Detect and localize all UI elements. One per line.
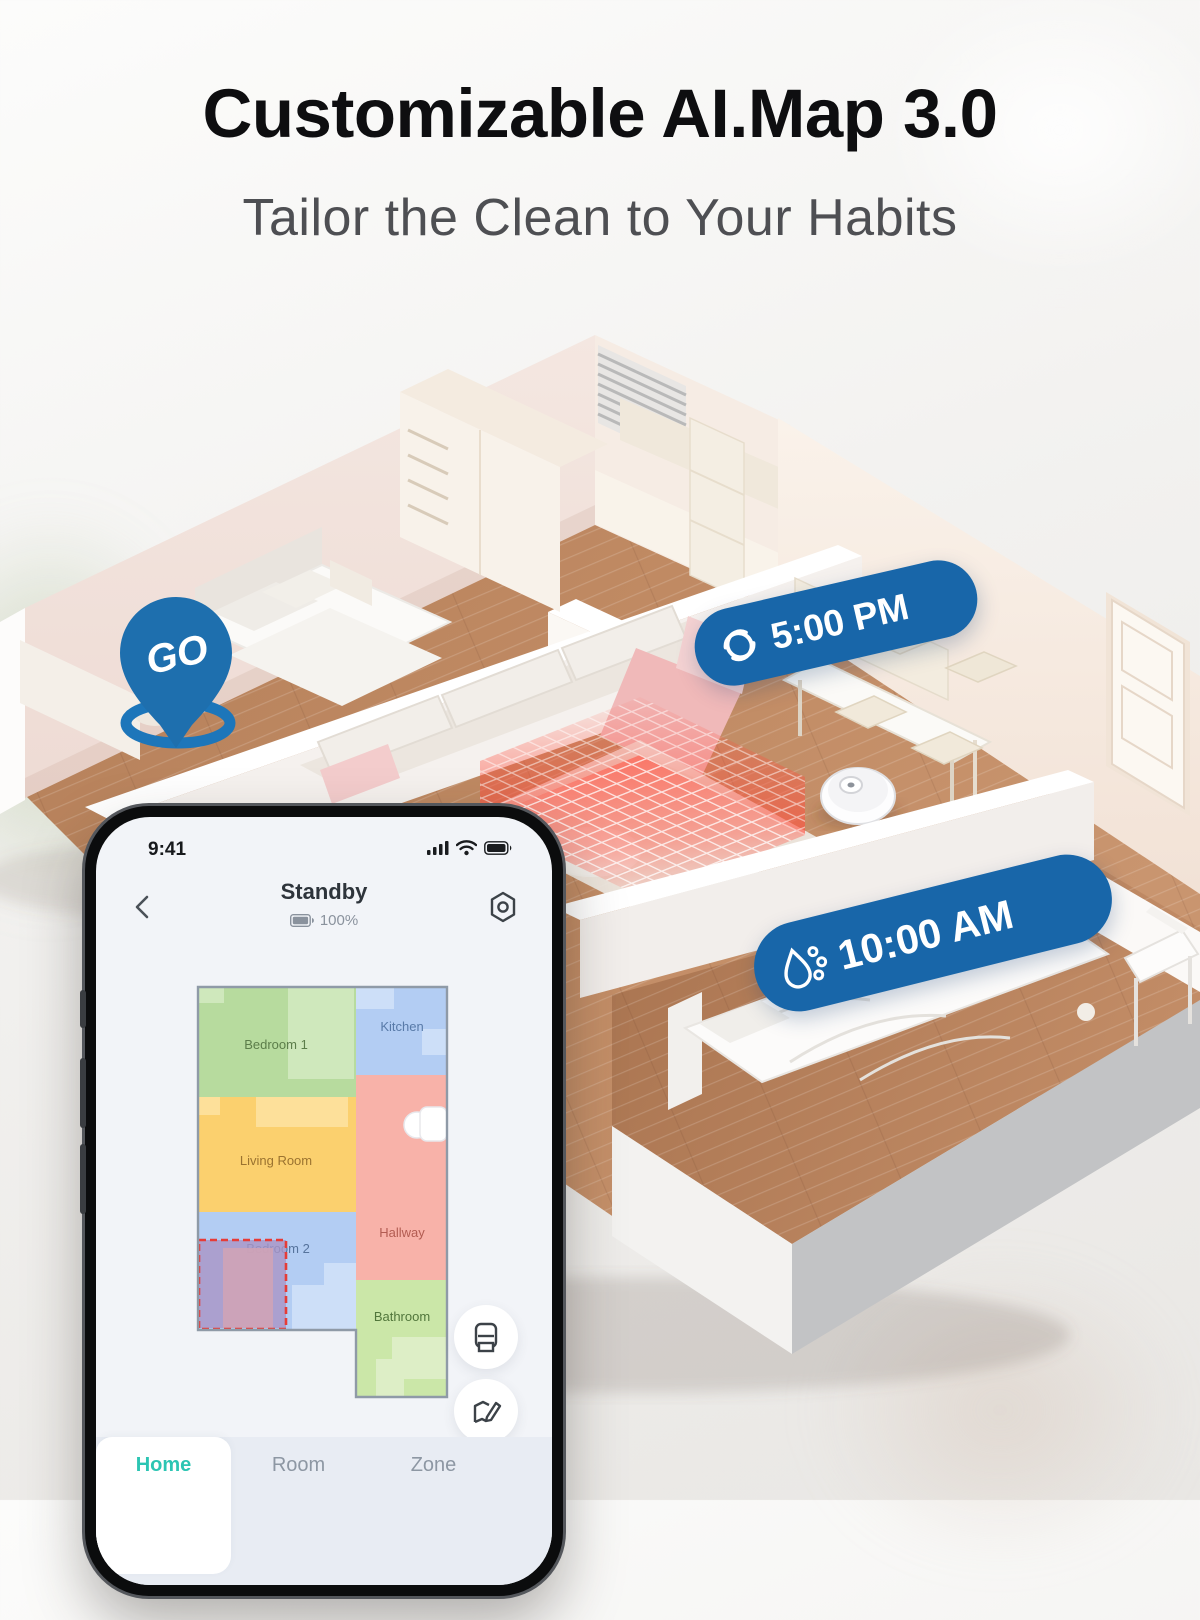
- gear-icon: [485, 889, 521, 925]
- map-room-label: Bedroom 1: [244, 1037, 308, 1052]
- edit-map-icon: [468, 1393, 504, 1429]
- battery-icon: [484, 841, 512, 855]
- settings-button[interactable]: [484, 889, 522, 927]
- vacuum-swirl-icon: [714, 620, 764, 670]
- map-room-label: Kitchen: [380, 1019, 423, 1034]
- dock-icon: [468, 1319, 504, 1355]
- vacuum-schedule-time: 5:00 PM: [767, 586, 913, 658]
- tab-zone[interactable]: Zone: [366, 1437, 501, 1585]
- dock-button[interactable]: [454, 1305, 518, 1369]
- map-room-kitchen[interactable]: Kitchen: [356, 987, 447, 1075]
- map-room-label: Bathroom: [374, 1309, 430, 1324]
- map-room-hallway[interactable]: Hallway: [356, 1075, 447, 1280]
- map-room-label: Hallway: [379, 1225, 425, 1240]
- map-room-bathroom[interactable]: Bathroom: [356, 1280, 447, 1397]
- phone-side-button: [80, 1144, 86, 1214]
- app-header: Standby 100%: [96, 879, 552, 959]
- phone-mockup: 9:41: [85, 806, 563, 1596]
- tab-room[interactable]: Room: [231, 1437, 366, 1585]
- cellular-signal-icon: [427, 840, 449, 856]
- wifi-icon: [456, 840, 477, 856]
- app-screen: 9:41: [96, 817, 552, 1585]
- status-time: 9:41: [148, 839, 186, 861]
- status-bar: 9:41: [96, 837, 552, 865]
- phone-side-button: [80, 990, 86, 1028]
- robot-battery-percent: 100%: [320, 912, 358, 929]
- tab-home[interactable]: Home: [96, 1437, 231, 1574]
- map-zone-selection[interactable]: [199, 1240, 286, 1329]
- map-room-bedroom1[interactable]: Bedroom 1: [198, 987, 356, 1097]
- phone-side-button: [80, 1058, 86, 1128]
- map-tabbar: Home Room Zone: [96, 1437, 552, 1585]
- floor-map: Bedroom 1 Kitchen Living Room Hallway: [196, 985, 449, 1401]
- map-room-label: Living Room: [240, 1153, 312, 1168]
- map-room-livingroom[interactable]: Living Room: [198, 1097, 356, 1212]
- mop-drops-icon: [773, 935, 834, 996]
- robot-battery-icon: [290, 914, 314, 927]
- edit-map-button[interactable]: [454, 1379, 518, 1443]
